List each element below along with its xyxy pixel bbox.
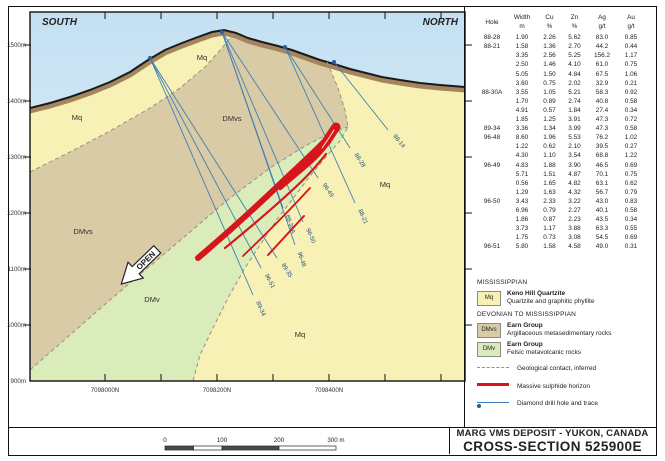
table-row: 4.301.103.5468.81.22 xyxy=(477,151,657,160)
table-cell: 61.0 xyxy=(587,60,617,69)
table-cell: 0.44 xyxy=(617,42,645,51)
unit-ag: g/t xyxy=(587,22,617,31)
table-cell: 2.70 xyxy=(562,42,587,51)
table-cell: 1.65 xyxy=(537,179,562,188)
table-cell: 3.88 xyxy=(562,224,587,233)
table-cell: 0.79 xyxy=(617,188,645,197)
table-cell xyxy=(477,60,507,69)
table-cell xyxy=(477,79,507,88)
table-cell: 1.84 xyxy=(562,106,587,115)
table-cell: 3.99 xyxy=(562,124,587,133)
unit-width: m xyxy=(507,22,537,31)
table-cell: 0.87 xyxy=(537,215,562,224)
table-cell: 32.9 xyxy=(587,79,617,88)
table-cell: 67.5 xyxy=(587,70,617,79)
table-cell: 27.4 xyxy=(587,106,617,115)
table-cell xyxy=(477,206,507,215)
legend: MISSISSIPPIAN Mq Keno Hill Quartzite Qua… xyxy=(477,274,659,416)
table-row: 96-515.801.584.5849.00.31 xyxy=(477,242,657,251)
table-cell: 4.82 xyxy=(562,179,587,188)
table-cell: 63.3 xyxy=(587,224,617,233)
table-cell xyxy=(477,188,507,197)
table-cell: 0.31 xyxy=(617,242,645,251)
legend-era-2: DEVONIAN TO MISSISSIPPIAN xyxy=(477,311,659,319)
table-cell: 1.46 xyxy=(537,60,562,69)
table-row: 3.600.752.0232.90.21 xyxy=(477,79,657,88)
table-cell xyxy=(477,51,507,60)
sulphide-line-icon xyxy=(477,383,509,392)
table-row: 88-30A3.551.055.2158.30.92 xyxy=(477,88,657,97)
table-cell: 2.26 xyxy=(537,33,562,42)
table-cell: 0.56 xyxy=(507,179,537,188)
table-row: 1.700.892.7440.80.58 xyxy=(477,97,657,106)
table-cell: 2.33 xyxy=(537,197,562,206)
legend-item-dmvs: DMvs Earn Group Argillaceous metasedimen… xyxy=(477,322,659,338)
table-cell: 40.1 xyxy=(587,206,617,215)
table-cell: 2.50 xyxy=(507,60,537,69)
legend-unit-name: Earn Group xyxy=(507,322,611,330)
col-width: Width xyxy=(507,13,537,22)
table-cell: 47.3 xyxy=(587,115,617,124)
mq-swatch: Mq xyxy=(477,291,501,306)
table-cell xyxy=(477,170,507,179)
table-cell: 3.22 xyxy=(562,197,587,206)
legend-symbol-label: Geological contact, inferred xyxy=(517,365,596,373)
table-cell: 1.86 xyxy=(507,215,537,224)
dmv-swatch: DMv xyxy=(477,342,501,357)
table-cell: 1.85 xyxy=(507,115,537,124)
table-cell: 1.10 xyxy=(537,151,562,160)
table-cell: 1.06 xyxy=(617,70,645,79)
table-row: 3.352.565.25156.21.17 xyxy=(477,51,657,60)
table-cell: 89-34 xyxy=(477,124,507,133)
table-cell: 3.90 xyxy=(562,161,587,170)
table-cell: 0.58 xyxy=(617,97,645,106)
table-cell: 0.34 xyxy=(617,215,645,224)
legend-unit-desc: Argillaceous metasedimentary rocks xyxy=(507,330,611,338)
table-cell xyxy=(477,215,507,224)
table-cell: 1.58 xyxy=(507,42,537,51)
table-cell: 3.43 xyxy=(507,197,537,206)
table-cell xyxy=(477,97,507,106)
table-cell: 2.56 xyxy=(537,51,562,60)
table-cell xyxy=(477,224,507,233)
table-cell: 4.58 xyxy=(562,242,587,251)
table-cell: 1.90 xyxy=(507,33,537,42)
table-cell: 5.25 xyxy=(562,51,587,60)
table-cell: 5.71 xyxy=(507,170,537,179)
table-cell xyxy=(477,142,507,151)
table-cell: 0.27 xyxy=(617,142,645,151)
table-cell: 1.29 xyxy=(507,188,537,197)
table-row: 1.220.622.1039.50.27 xyxy=(477,142,657,151)
table-cell: 1.17 xyxy=(617,51,645,60)
table-cell xyxy=(477,233,507,242)
table-cell: 3.73 xyxy=(507,224,537,233)
table-cell: 0.21 xyxy=(617,79,645,88)
table-cell: 1.63 xyxy=(537,188,562,197)
table-cell: 0.57 xyxy=(537,106,562,115)
table-row: 88-211.581.362.7044.20.44 xyxy=(477,42,657,51)
dashed-contact-icon xyxy=(477,367,509,374)
dmvs-swatch: DMvs xyxy=(477,323,501,338)
table-cell: 8.60 xyxy=(507,133,537,142)
table-cell: 44.2 xyxy=(587,42,617,51)
table-cell: 0.69 xyxy=(617,233,645,242)
table-cell: 54.5 xyxy=(587,233,617,242)
legend-item-sulphide: Massive sulphide horizon xyxy=(477,381,659,392)
table-cell: 76.2 xyxy=(587,133,617,142)
table-cell: 0.83 xyxy=(617,197,645,206)
table-cell xyxy=(477,70,507,79)
table-cell: 1.25 xyxy=(537,115,562,124)
table-cell: 1.36 xyxy=(537,42,562,51)
table-cell: 4.91 xyxy=(507,106,537,115)
table-cell: 5.53 xyxy=(562,133,587,142)
table-cell: 46.5 xyxy=(587,161,617,170)
legend-unit-desc: Felsic metavolcanic rocks xyxy=(507,349,581,357)
assay-table-body: 88-281.902.265.6283.00.8588-211.581.362.… xyxy=(477,33,657,251)
table-cell: 96-50 xyxy=(477,197,507,206)
table-cell: 4.87 xyxy=(562,170,587,179)
table-cell: 70.1 xyxy=(587,170,617,179)
table-cell: 3.54 xyxy=(562,151,587,160)
unit-au: g/t xyxy=(617,22,645,31)
table-row: 1.860.872.2343.50.34 xyxy=(477,215,657,224)
table-cell: 1.50 xyxy=(537,70,562,79)
table-cell: 0.75 xyxy=(617,60,645,69)
table-cell: 1.51 xyxy=(537,170,562,179)
table-cell: 1.58 xyxy=(537,242,562,251)
table-row: 88-281.902.265.6283.00.85 xyxy=(477,33,657,42)
table-row: 1.750.733.0854.50.69 xyxy=(477,233,657,242)
table-cell: 3.36 xyxy=(507,124,537,133)
legend-item-dmv: DMv Earn Group Felsic metavolcanic rocks xyxy=(477,341,659,357)
cross-section-sheet: 89-3496-5189-3596-4896-5088-30A96-4988-2… xyxy=(0,0,665,461)
table-cell: 0.89 xyxy=(537,97,562,106)
table-cell: 43.5 xyxy=(587,215,617,224)
drill-trace-icon xyxy=(477,402,509,409)
table-cell: 6.96 xyxy=(507,206,537,215)
table-cell: 58.3 xyxy=(587,88,617,97)
table-cell: 0.72 xyxy=(617,115,645,124)
table-cell: 5.80 xyxy=(507,242,537,251)
table-row: 2.501.464.1061.00.75 xyxy=(477,60,657,69)
legend-item-contact: Geological contact, inferred xyxy=(477,364,659,374)
table-cell: 88-21 xyxy=(477,42,507,51)
table-cell: 3.35 xyxy=(507,51,537,60)
legend-era-1: MISSISSIPPIAN xyxy=(477,279,659,287)
table-cell: 4.30 xyxy=(507,151,537,160)
table-cell: 5.05 xyxy=(507,70,537,79)
table-cell: 1.22 xyxy=(617,151,645,160)
table-cell: 4.83 xyxy=(507,161,537,170)
table-cell: 47.3 xyxy=(587,124,617,133)
table-cell: 3.08 xyxy=(562,233,587,242)
table-cell: 96-51 xyxy=(477,242,507,251)
sidebar-divider xyxy=(464,7,465,427)
table-cell: 88-30A xyxy=(477,88,507,97)
section-title: CROSS-SECTION 525900E xyxy=(463,439,642,454)
table-cell: 40.8 xyxy=(587,97,617,106)
table-cell: 1.34 xyxy=(537,124,562,133)
legend-unit-name: Keno Hill Quartzite xyxy=(507,290,594,298)
table-cell: 1.17 xyxy=(537,224,562,233)
table-cell: 0.85 xyxy=(617,33,645,42)
legend-unit-desc: Quartzite and graphitic phyllite xyxy=(507,298,594,306)
table-cell: 96-48 xyxy=(477,133,507,142)
assay-table: Hole Width Cu Zn Ag Au m % % g/t g/t 88-… xyxy=(477,13,657,251)
legend-unit-name: Earn Group xyxy=(507,341,581,349)
table-cell: 0.73 xyxy=(537,233,562,242)
table-row: 96-494.831.883.9046.50.69 xyxy=(477,161,657,170)
table-cell: 0.79 xyxy=(537,206,562,215)
table-cell: 5.62 xyxy=(562,33,587,42)
legend-symbol-label: Massive sulphide horizon xyxy=(517,383,590,391)
table-cell: 88-28 xyxy=(477,33,507,42)
table-cell: 0.55 xyxy=(617,224,645,233)
table-cell: 4.84 xyxy=(562,70,587,79)
table-row: 4.910.571.8427.40.34 xyxy=(477,106,657,115)
table-cell: 49.0 xyxy=(587,242,617,251)
table-cell: 2.02 xyxy=(562,79,587,88)
table-row: 96-488.601.965.5376.21.02 xyxy=(477,133,657,142)
table-cell: 63.1 xyxy=(587,179,617,188)
table-cell: 4.32 xyxy=(562,188,587,197)
table-cell: 56.7 xyxy=(587,188,617,197)
table-cell: 4.10 xyxy=(562,60,587,69)
table-cell: 2.10 xyxy=(562,142,587,151)
table-cell xyxy=(477,106,507,115)
table-cell: 2.74 xyxy=(562,97,587,106)
table-cell: 1.70 xyxy=(507,97,537,106)
deposit-title: MARG VMS DEPOSIT - YUKON, CANADA xyxy=(456,428,648,439)
table-cell xyxy=(477,151,507,160)
table-row: 1.851.253.9147.30.72 xyxy=(477,115,657,124)
table-cell: 3.55 xyxy=(507,88,537,97)
unit-zn: % xyxy=(562,22,587,31)
unit-cu: % xyxy=(537,22,562,31)
table-cell: 3.60 xyxy=(507,79,537,88)
table-cell: 1.96 xyxy=(537,133,562,142)
table-row: 1.291.634.3256.70.79 xyxy=(477,188,657,197)
legend-symbol-label: Diamond drill hole and trace xyxy=(517,400,598,408)
table-row: 3.731.173.8863.30.55 xyxy=(477,224,657,233)
table-cell: 0.58 xyxy=(617,206,645,215)
table-cell: 0.58 xyxy=(617,124,645,133)
table-row: 89-343.361.343.9947.30.58 xyxy=(477,124,657,133)
title-block: MARG VMS DEPOSIT - YUKON, CANADA CROSS-S… xyxy=(450,428,655,454)
table-cell: 3.91 xyxy=(562,115,587,124)
table-cell: 156.2 xyxy=(587,51,617,60)
table-row: 96-503.432.333.2243.00.83 xyxy=(477,197,657,206)
table-cell xyxy=(477,179,507,188)
table-cell: 1.02 xyxy=(617,133,645,142)
table-row: 0.561.654.8263.10.62 xyxy=(477,179,657,188)
table-row: 5.711.514.8770.10.75 xyxy=(477,170,657,179)
assay-table-header: Hole Width Cu Zn Ag Au m % % g/t g/t xyxy=(477,13,657,31)
table-cell: 5.21 xyxy=(562,88,587,97)
col-ag: Ag xyxy=(587,13,617,22)
table-cell: 83.0 xyxy=(587,33,617,42)
table-cell: 1.22 xyxy=(507,142,537,151)
table-cell: 1.05 xyxy=(537,88,562,97)
col-hole: Hole xyxy=(477,18,507,27)
table-cell: 2.23 xyxy=(562,215,587,224)
legend-item-mq: Mq Keno Hill Quartzite Quartzite and gra… xyxy=(477,290,659,306)
table-cell: 0.62 xyxy=(617,179,645,188)
table-cell: 0.92 xyxy=(617,88,645,97)
table-cell: 2.27 xyxy=(562,206,587,215)
table-cell: 96-49 xyxy=(477,161,507,170)
table-cell: 0.34 xyxy=(617,106,645,115)
table-cell: 1.88 xyxy=(537,161,562,170)
table-cell: 0.62 xyxy=(537,142,562,151)
col-zn: Zn xyxy=(562,13,587,22)
table-cell: 0.75 xyxy=(617,170,645,179)
table-row: 5.051.504.8467.51.06 xyxy=(477,70,657,79)
col-au: Au xyxy=(617,13,645,22)
table-cell: 0.75 xyxy=(537,79,562,88)
table-row: 6.960.792.2740.10.58 xyxy=(477,206,657,215)
table-cell xyxy=(477,115,507,124)
col-cu: Cu xyxy=(537,13,562,22)
table-cell: 43.0 xyxy=(587,197,617,206)
table-cell: 39.5 xyxy=(587,142,617,151)
table-cell: 68.8 xyxy=(587,151,617,160)
legend-item-drillhole: Diamond drill hole and trace xyxy=(477,399,659,409)
table-cell: 1.75 xyxy=(507,233,537,242)
table-cell: 0.69 xyxy=(617,161,645,170)
